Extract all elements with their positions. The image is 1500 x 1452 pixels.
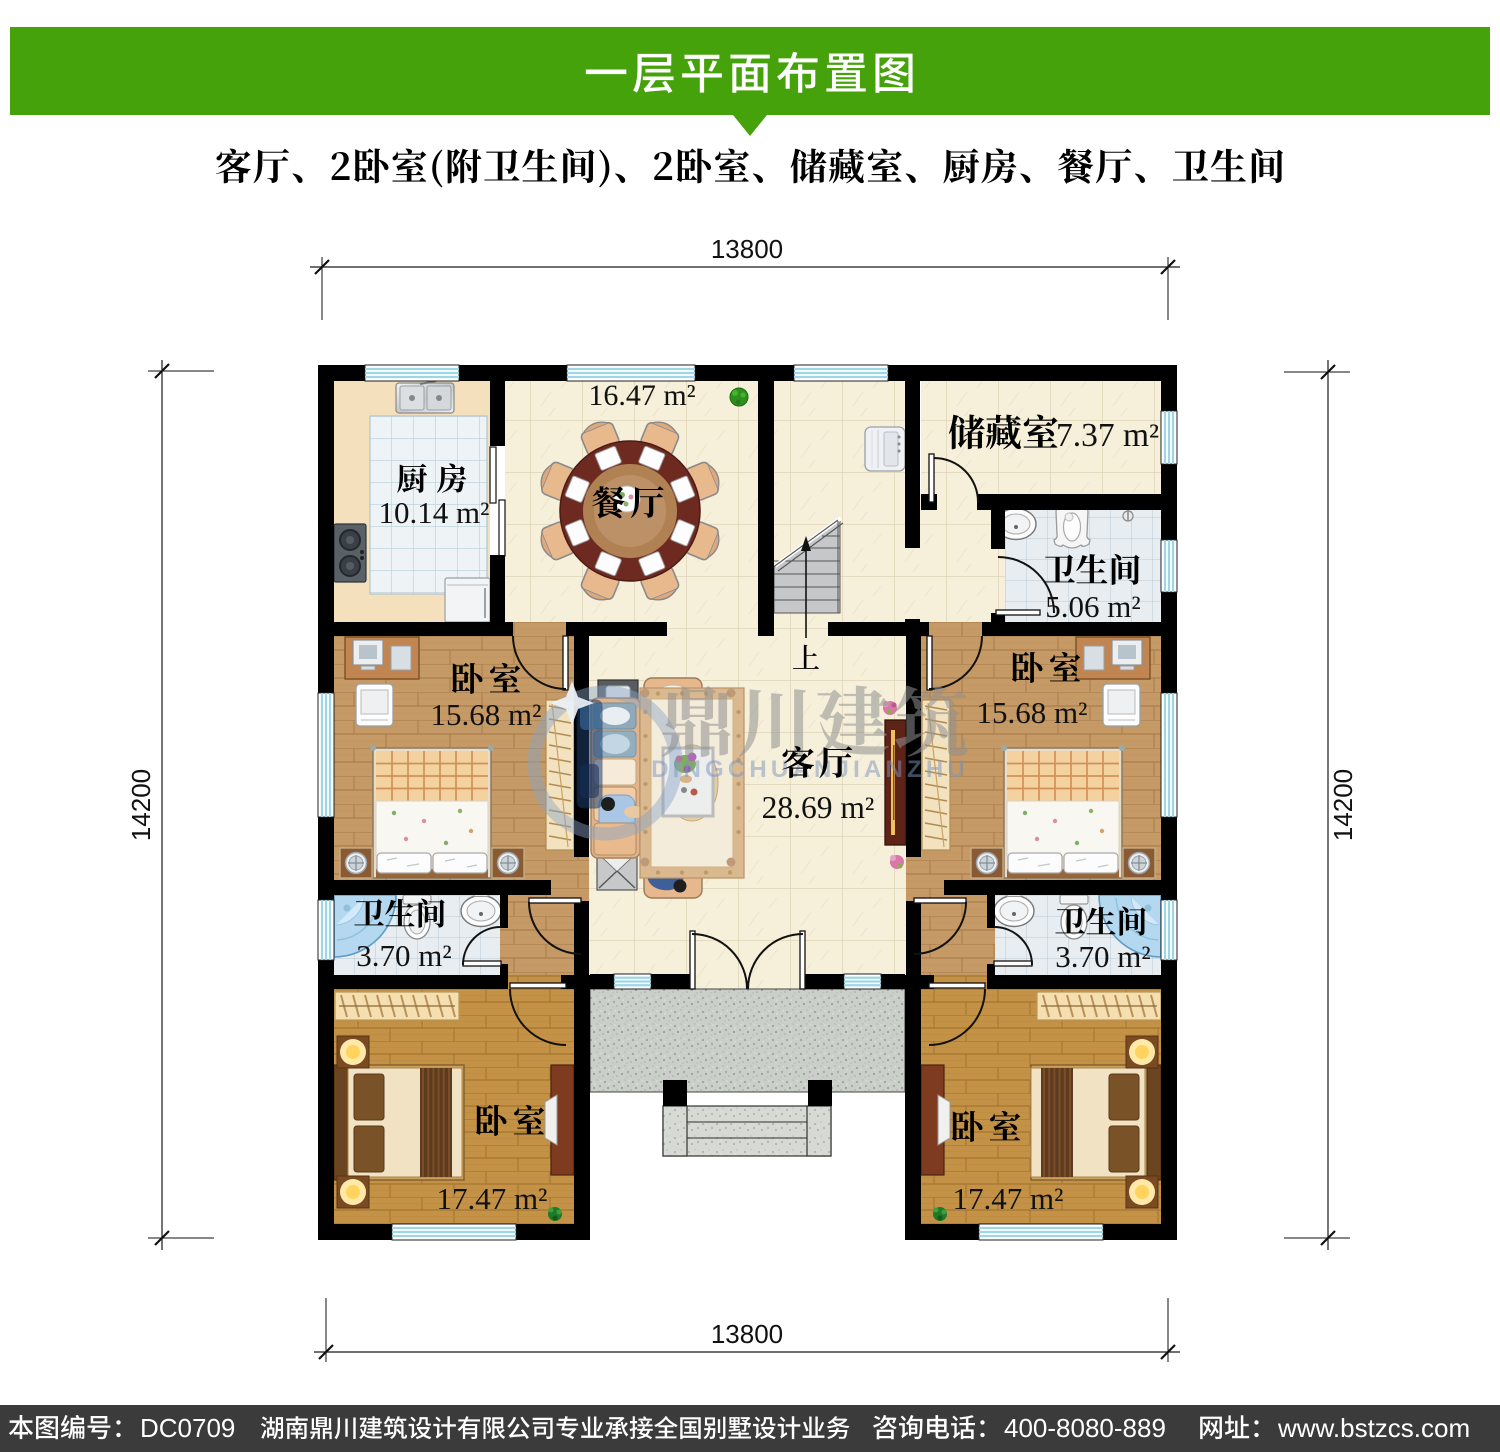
svg-text:7.37 m²: 7.37 m²	[1056, 417, 1159, 454]
svg-text:3.70 m²: 3.70 m²	[1055, 939, 1150, 974]
svg-text:15.68 m²: 15.68 m²	[977, 695, 1088, 730]
svg-text:DINGCHUANJIANZHU: DINGCHUANJIANZHU	[651, 756, 969, 783]
svg-text:16.47 m²: 16.47 m²	[588, 379, 695, 412]
svg-text:10.14 m²: 10.14 m²	[379, 495, 490, 530]
svg-text:14200: 14200	[126, 769, 156, 841]
svg-text:17.47 m²: 17.47 m²	[437, 1181, 548, 1216]
svg-text:17.47 m²: 17.47 m²	[953, 1181, 1064, 1216]
svg-text:3.70 m²: 3.70 m²	[356, 938, 451, 973]
svg-text:13800: 13800	[711, 234, 783, 264]
svg-text:400-8080-889: 400-8080-889	[1004, 1413, 1166, 1443]
svg-text:28.69 m²: 28.69 m²	[762, 790, 875, 825]
svg-text:DC0709: DC0709	[140, 1413, 235, 1443]
svg-text:13800: 13800	[711, 1319, 783, 1349]
svg-text:5.06 m²: 5.06 m²	[1045, 589, 1140, 624]
svg-text:14200: 14200	[1328, 769, 1358, 841]
svg-text:www.bstzcs.com: www.bstzcs.com	[1277, 1413, 1470, 1443]
svg-text:15.68 m²: 15.68 m²	[431, 697, 542, 732]
